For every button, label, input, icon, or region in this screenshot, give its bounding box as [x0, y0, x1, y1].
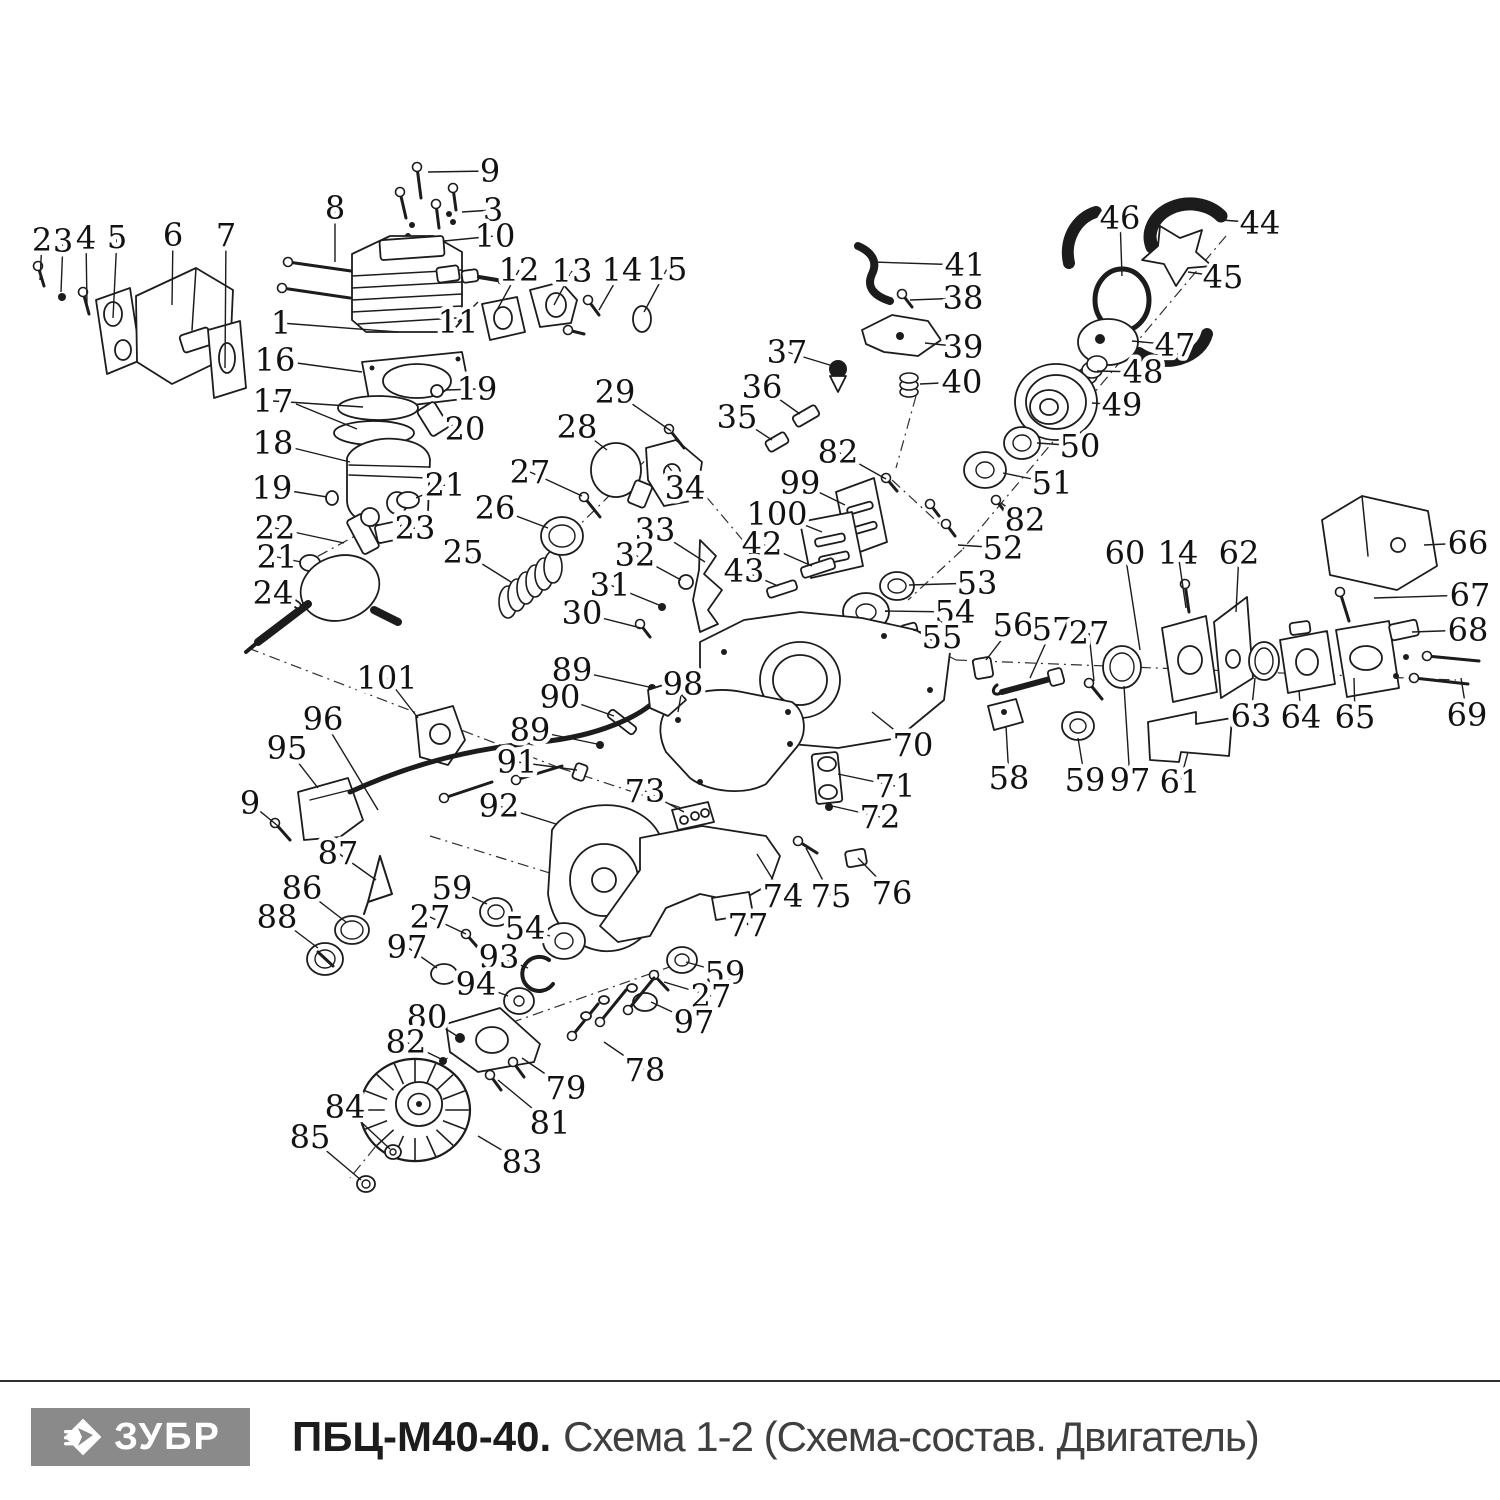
callout-44: 44: [1240, 204, 1281, 242]
muffler-gasket-plate: [96, 288, 141, 374]
callout-1: 1: [271, 304, 291, 342]
filter-base-hole: [1350, 646, 1382, 670]
cylinder-bolt: [413, 163, 422, 199]
fuel-line-36: [792, 404, 821, 427]
washer-g: [1403, 654, 1409, 660]
case-hole-a: [721, 649, 727, 655]
callout-6: 6: [163, 216, 183, 254]
callout-8: 8: [325, 189, 345, 227]
callout-55: 55: [922, 618, 963, 656]
carburetor-bore: [1296, 649, 1318, 675]
callout-69: 69: [1447, 696, 1488, 734]
callout-82: 82: [818, 433, 859, 471]
worm-spring-25: [499, 551, 562, 618]
callout-21: 21: [257, 538, 298, 576]
diagram-title: ПБЦ-М40-40. Схема 1-2 (Схема-состав. Дви…: [292, 1408, 1259, 1466]
callout-63: 63: [1231, 697, 1272, 735]
callout-13: 13: [552, 252, 593, 290]
washer-h: [1393, 673, 1399, 679]
callout-68: 68: [1448, 611, 1489, 649]
washer-47-hole: [1095, 334, 1105, 344]
callout-11: 11: [438, 303, 479, 341]
callout-74: 74: [763, 877, 804, 915]
callout-27: 27: [510, 453, 551, 491]
washer-94: [504, 988, 534, 1014]
gasket98-hole-c: [787, 741, 793, 747]
callout-28: 28: [557, 408, 598, 446]
washer-86: [335, 916, 369, 944]
callout-21: 21: [425, 466, 466, 504]
pin-clip-19: [431, 385, 443, 397]
callout-25: 25: [443, 533, 484, 571]
callout-97: 97: [387, 928, 428, 966]
zubr-logo-icon: [60, 1414, 106, 1460]
callout-97: 97: [674, 1003, 715, 1041]
callout-29: 29: [595, 373, 636, 411]
oil-seal-53: [880, 572, 914, 600]
callout-67: 67: [1450, 576, 1491, 614]
gasket98-hole-b: [785, 709, 791, 715]
callout-88: 88: [257, 898, 298, 936]
crankcase-bore-2: [773, 655, 827, 705]
callout-37: 37: [767, 333, 808, 371]
callout-38: 38: [943, 279, 984, 317]
callout-36: 36: [742, 368, 783, 406]
callout-17: 17: [253, 382, 294, 420]
spark-plug-body: [436, 265, 460, 283]
cylinder-head-boss: [379, 236, 444, 260]
spring-40: [900, 373, 918, 397]
callout-19: 19: [457, 370, 498, 408]
oil-hose-57: [1002, 679, 1050, 692]
spark-plug-tip: [479, 277, 497, 280]
cover-bolt-69: [1423, 652, 1480, 662]
diagram-title-subtitle: Схема 1-2 (Схема-состав. Двигатель): [563, 1413, 1259, 1461]
parts-diagram-page: 2345679831012131415111161719201819212223…: [0, 0, 1500, 1500]
cylinder-bolt-3: [449, 184, 458, 211]
callout-73: 73: [625, 772, 666, 810]
callout-49: 49: [1102, 386, 1143, 424]
air-filter-cover-66: [1322, 496, 1437, 590]
callout-43: 43: [724, 552, 765, 590]
valve-91: [572, 762, 589, 781]
callout-101: 101: [356, 659, 417, 697]
washer-97e: [633, 993, 657, 1011]
callout-40: 40: [942, 363, 983, 401]
seal-97: [1103, 646, 1141, 688]
washer-a: [446, 211, 452, 217]
callout-39: 39: [943, 328, 984, 366]
washer-78b: [627, 984, 637, 992]
callout-97: 97: [1110, 761, 1151, 799]
cylinder-stud: [284, 258, 359, 273]
callout-98: 98: [663, 665, 704, 703]
choke-rod-67: [1336, 588, 1350, 622]
pulley-54b: [543, 923, 585, 959]
footer-divider: [0, 1380, 1500, 1382]
crank-shaft-tip: [246, 642, 258, 652]
cylinder-bolt-2: [396, 188, 407, 219]
callout-24: 24: [253, 574, 294, 612]
spacer-63: [1249, 642, 1279, 680]
manifold-bolt-14: [584, 296, 600, 316]
carb-gasket-hole: [1226, 650, 1240, 668]
callout-34: 34: [665, 469, 706, 507]
washer-21a: [397, 492, 419, 508]
oil-hose-end: [1047, 667, 1065, 686]
callout-95: 95: [267, 729, 308, 767]
fuel-filter-cone: [830, 376, 846, 392]
callout-57: 57: [1032, 610, 1073, 648]
tensioner-gear: [818, 757, 836, 771]
callout-58: 58: [989, 759, 1030, 797]
gasket-hole-a: [370, 366, 375, 371]
muffler-washer: [58, 293, 66, 301]
callout-70: 70: [893, 726, 934, 764]
gasket98-hole-a: [675, 717, 681, 723]
screw-38: [898, 290, 913, 308]
throttle-lever-33: [693, 540, 722, 632]
callout-45: 45: [1203, 258, 1244, 296]
bolt-78b: [596, 990, 627, 1027]
bolt-27: [580, 493, 601, 518]
callout-20: 20: [445, 410, 486, 448]
spacer-bump-c: [701, 809, 709, 817]
callout-56: 56: [993, 606, 1034, 644]
diagram-title-model: ПБЦ-М40-40.: [292, 1413, 551, 1461]
spacer-bump-b: [691, 812, 699, 820]
filter-68: [1389, 619, 1420, 640]
callout-14: 14: [1158, 534, 1199, 572]
callout-78: 78: [625, 1051, 666, 1089]
screw-30: [636, 620, 651, 638]
ball-89b: [596, 741, 604, 749]
callout-19: 19: [252, 469, 293, 507]
callout-60: 60: [1105, 534, 1146, 572]
clutch-drum-bore: [1040, 399, 1058, 415]
oil-seal-26: [541, 517, 583, 555]
callout-94: 94: [456, 965, 497, 1003]
exploded-diagram: 2345679831012131415111161719201819212223…: [0, 0, 1500, 1500]
spark-plug-hex: [461, 269, 479, 283]
callout-23: 23: [395, 509, 436, 547]
bracket-screw: [1001, 709, 1007, 715]
clamp-15: [633, 306, 651, 332]
callout-59: 59: [1065, 761, 1106, 799]
callout-91: 91: [497, 743, 538, 781]
callout-72: 72: [860, 798, 901, 836]
callout-46: 46: [1100, 199, 1141, 237]
cylinder-bolt-4: [432, 200, 441, 229]
callout-26: 26: [475, 489, 516, 527]
crank-stub: [374, 610, 398, 622]
ignition-module-95: [298, 778, 363, 840]
cylinder-stud-2: [278, 284, 351, 299]
throttle-spring-87: [364, 856, 392, 914]
intake-manifold-hole: [546, 293, 566, 317]
flywheel-83: [360, 1059, 470, 1161]
callout-61: 61: [1160, 763, 1201, 801]
washer-32: [679, 575, 693, 589]
switch-detail: [896, 332, 904, 340]
case-hole-c: [927, 687, 933, 693]
callout-14: 14: [602, 251, 643, 289]
bolt-14c: [1181, 580, 1190, 613]
callout-2: 2: [32, 221, 52, 259]
muffler-plate-hole-2: [115, 340, 131, 360]
grommet-59e: [667, 947, 697, 973]
callout-52: 52: [983, 529, 1024, 567]
gasket98-hole-d: [697, 779, 703, 785]
callout-15: 15: [647, 250, 688, 288]
bolt-27c: [1085, 679, 1103, 700]
callout-65: 65: [1335, 698, 1376, 736]
crankcase-gasket-98: [660, 690, 804, 791]
manifold-screw: [564, 326, 585, 335]
callout-83: 83: [502, 1143, 543, 1181]
cover-plate-hole: [476, 1027, 508, 1053]
callout-4: 4: [76, 219, 96, 257]
washer-78c: [581, 1012, 591, 1020]
callout-9: 9: [480, 152, 500, 190]
callout-66: 66: [1448, 524, 1489, 562]
washer-50: [1004, 427, 1040, 459]
callout-92: 92: [479, 787, 520, 825]
plug-75: [794, 837, 818, 854]
zubr-logo: ЗУБР: [31, 1408, 250, 1466]
zubr-logo-text: ЗУБР: [114, 1416, 221, 1459]
callout-75: 75: [811, 877, 852, 915]
exhaust-gasket-hole: [494, 307, 512, 329]
starter-hub: [592, 868, 616, 892]
callout-50: 50: [1060, 427, 1101, 465]
washer-b: [450, 219, 456, 225]
fuel-pickup-35: [764, 431, 789, 452]
cover-vent: [1391, 538, 1405, 552]
piston-ring-17a: [338, 396, 418, 420]
gasket-hole-b: [456, 357, 461, 362]
circlip-19b: [326, 491, 338, 505]
fuel-hose-41: [858, 246, 890, 301]
tensioner-gear-2: [819, 785, 837, 799]
callout-16: 16: [255, 341, 296, 379]
callout-10: 10: [475, 217, 516, 255]
case-hole-b: [881, 633, 887, 639]
callout-5: 5: [107, 218, 127, 256]
washer-e: [409, 222, 415, 228]
callout-64: 64: [1281, 698, 1322, 736]
clutch-shoe-46: [1068, 212, 1096, 263]
callout-81: 81: [530, 1104, 571, 1142]
coil-hole: [430, 724, 450, 744]
callout-12: 12: [499, 251, 540, 289]
callout-7: 7: [216, 216, 236, 254]
callout-27: 27: [1069, 614, 1110, 652]
bolt-78a: [568, 1004, 599, 1041]
callout-77: 77: [728, 906, 769, 944]
callout-76: 76: [872, 874, 913, 912]
bearing-51: [964, 452, 1006, 488]
washer-78a: [599, 996, 609, 1004]
circlip-93: [522, 957, 553, 991]
heat-plate-hole: [1178, 646, 1202, 674]
parts: [34, 163, 1480, 1193]
callout-9: 9: [240, 784, 260, 822]
callout-30: 30: [562, 594, 603, 632]
callout-51: 51: [1032, 464, 1073, 502]
callout-3: 3: [53, 222, 73, 260]
muffler-gasket-hole: [219, 343, 235, 373]
muffler-screw: [34, 262, 45, 287]
callout-79: 79: [546, 1069, 587, 1107]
callout-84: 84: [325, 1088, 366, 1126]
callout-62: 62: [1219, 534, 1260, 572]
callout-87: 87: [318, 834, 359, 872]
grommet-59: [1062, 712, 1094, 740]
callout-82: 82: [386, 1023, 427, 1061]
washer-31: [658, 603, 666, 611]
pin-72: [825, 803, 833, 811]
spacer-bump-a: [680, 816, 688, 824]
crank-rod-eye: [361, 508, 379, 526]
callout-85: 85: [290, 1118, 331, 1156]
screw-82d: [942, 520, 956, 537]
carburetor-top: [1289, 621, 1310, 636]
oil-cap-56: [972, 657, 993, 680]
callout-96: 96: [303, 700, 344, 738]
callout-18: 18: [253, 424, 294, 462]
carb-gasket-62: [1214, 597, 1253, 698]
gasket-61: [1148, 712, 1232, 762]
nut-80: [455, 1033, 465, 1043]
